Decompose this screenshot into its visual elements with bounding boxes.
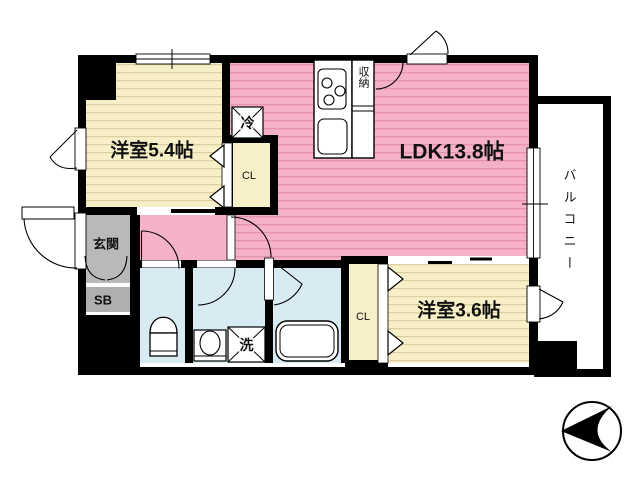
- closet1-label: CL: [242, 170, 256, 182]
- entry-door-opening: [407, 54, 447, 64]
- wall-bathroom-closet: [341, 268, 349, 363]
- closet2-door-track: [378, 264, 388, 363]
- bedroom2-sliding-door-track: [388, 256, 529, 264]
- wall-bottom: [78, 367, 545, 375]
- floor-plan: LDK13.8帖 洋室5.4帖 洋室3.6帖 玄関 SB CL CL 冷 洗 収…: [0, 0, 640, 480]
- bedroom1-label: 洋室5.4帖: [110, 139, 193, 162]
- balcony-wall-top: [529, 96, 611, 104]
- bedroom2-sliding-door-panel: [470, 258, 492, 261]
- shoe-box-label: SB: [94, 293, 112, 308]
- front-door-swing-arc: [24, 219, 77, 268]
- window-bedroom1-left: [75, 128, 86, 170]
- wall-bedroom1-ldk: [222, 63, 230, 141]
- compass: [561, 402, 621, 460]
- front-door-leaf: [22, 207, 74, 219]
- entrance-label: 玄関: [93, 237, 119, 252]
- pillar-top-left: [80, 60, 116, 100]
- casement-window-arc: [50, 157, 77, 169]
- wall-bedroom2-top-left: [341, 256, 388, 264]
- casement-window-line: [50, 130, 77, 157]
- balcony-door-opening: [527, 286, 540, 322]
- wall-entrance-right: [130, 207, 140, 367]
- duct-block-bottom-left: [82, 315, 130, 367]
- balcony-step: [534, 341, 577, 371]
- bathtub-icon: [276, 321, 338, 361]
- door-swing-arc: [436, 31, 448, 54]
- bathroom-door-leaf: [265, 258, 274, 300]
- balcony-wall-right: [603, 96, 611, 377]
- closet2-label: CL: [356, 311, 370, 323]
- balcony-label: バルコニー: [562, 168, 577, 278]
- bedroom2-label: 洋室3.6帖: [417, 299, 500, 322]
- kitchen-sink-icon: [318, 119, 347, 154]
- bedroom1-sliding-door-panel: [171, 209, 215, 213]
- washroom-door-opening: [197, 261, 236, 268]
- gas-stove-icon: [318, 69, 346, 109]
- hallway-area: [138, 215, 227, 260]
- ldk-door-opening: [227, 215, 235, 260]
- toilet-tank: [150, 333, 177, 356]
- washing-machine-label: 洗: [240, 337, 254, 353]
- wall-toilet-washroom: [185, 268, 193, 363]
- door-leaf: [410, 31, 436, 55]
- kitchen-storage-label: 収納: [357, 66, 370, 89]
- refrigerator-label: 冷: [241, 115, 255, 131]
- front-door-opening: [75, 213, 86, 269]
- ldk-label: LDK13.8帖: [399, 141, 504, 164]
- toilet-door-opening: [141, 261, 181, 268]
- floor-plan-drawing: LDK13.8帖 洋室5.4帖 洋室3.6帖 玄関 SB CL CL 冷 洗 収…: [0, 0, 640, 480]
- bedroom2-sliding-door-panel: [428, 261, 452, 264]
